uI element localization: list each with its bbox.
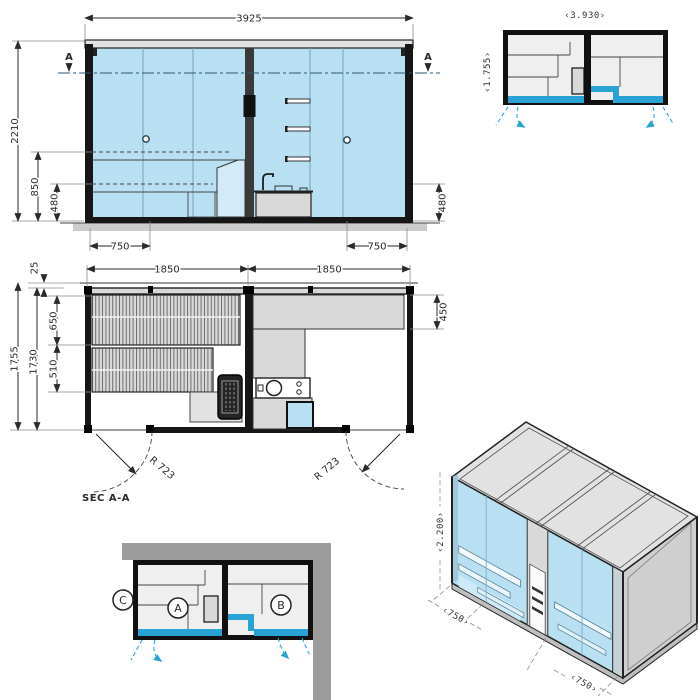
iso-dim-module-right: ‹750› — [568, 672, 599, 695]
miniplan-glass-front-left — [508, 96, 584, 103]
sink-unit — [256, 378, 310, 398]
dim-bench-height: 850 — [30, 177, 41, 196]
label-side: C — [119, 594, 127, 607]
shower-tray — [287, 402, 313, 428]
dim-depth-inner: 1730 — [29, 349, 40, 374]
dim-room-right-width: 1850 — [316, 265, 341, 276]
cornerplan-glass-left — [138, 629, 222, 636]
wall-left — [85, 288, 91, 433]
iso-corner-post — [613, 566, 623, 678]
technical-drawing-page: A A 3925 2210 850 480 480 — [0, 0, 700, 700]
isometric-view: ‹2.200› ‹750› ‹750› — [420, 420, 700, 700]
ground-strip — [73, 223, 427, 231]
dim-room-left-width: 1850 — [154, 265, 179, 276]
cornerplan-partition — [222, 560, 228, 638]
floor-plan-view: R 723 R 723 SEC A-A 1850 1850 25 1755 17… — [0, 255, 460, 520]
plan-partition — [245, 288, 253, 433]
dim-height-total: 2210 — [10, 118, 21, 143]
miniplan-dim-depth: ‹1.755› — [483, 51, 493, 92]
dim-depth-total: 1755 — [10, 346, 21, 371]
wall-right — [407, 288, 413, 433]
section-marker-right: A — [424, 52, 432, 63]
counter-column — [253, 329, 305, 378]
iso-dim-module-left: ‹750› — [440, 605, 471, 628]
plan-door-swings: R 723 R 723 — [92, 431, 404, 492]
dim-roof-offset: 25 — [30, 262, 41, 275]
dim-width-total: 3925 — [236, 14, 261, 25]
counter-band — [253, 295, 404, 329]
corner-post-right — [405, 44, 413, 223]
door-handle-right — [344, 137, 350, 143]
label-left-room: A — [174, 602, 182, 615]
heater-elevation — [217, 160, 245, 217]
dim-door-left: 750 — [110, 242, 129, 253]
dim-plinth-left: 480 — [50, 193, 61, 212]
roof-fascia — [85, 40, 413, 48]
dim-bench-upper: 650 — [49, 311, 60, 330]
corner-placement-view: C A B — [100, 530, 360, 700]
miniplan-door-swings — [496, 107, 674, 127]
mini-plan-view: ‹3.930› ‹1.755› — [460, 0, 700, 150]
sink-tap-icon — [258, 385, 263, 391]
dim-bench-lower: 510 — [49, 359, 60, 378]
corner-post-left — [85, 44, 93, 223]
label-right-room: B — [277, 599, 285, 612]
partition-fixture — [244, 95, 256, 117]
dim-counter-depth: 450 — [439, 302, 450, 321]
dim-door-right: 750 — [367, 242, 386, 253]
heater-plan — [218, 375, 242, 419]
door-handle-left — [143, 136, 149, 142]
dim-plinth-right: 480 — [438, 193, 449, 212]
cabin-elevation — [85, 40, 413, 223]
miniplan-dim-width: ‹3.930› — [564, 11, 605, 21]
front-elevation-view: A A 3925 2210 850 480 480 — [0, 0, 460, 260]
iso-dim-height: ‹2.200› — [436, 511, 446, 552]
dim-door-swing-left: R 723 — [147, 455, 176, 482]
cornerplan-door-swings — [131, 638, 310, 661]
miniplan-partition — [584, 30, 591, 105]
section-label: SEC A-A — [82, 493, 130, 504]
sink-basin-icon — [267, 381, 282, 396]
dim-door-swing-right: R 723 — [313, 456, 342, 483]
bottom-sill — [85, 217, 413, 223]
section-marker-left: A — [65, 52, 73, 63]
